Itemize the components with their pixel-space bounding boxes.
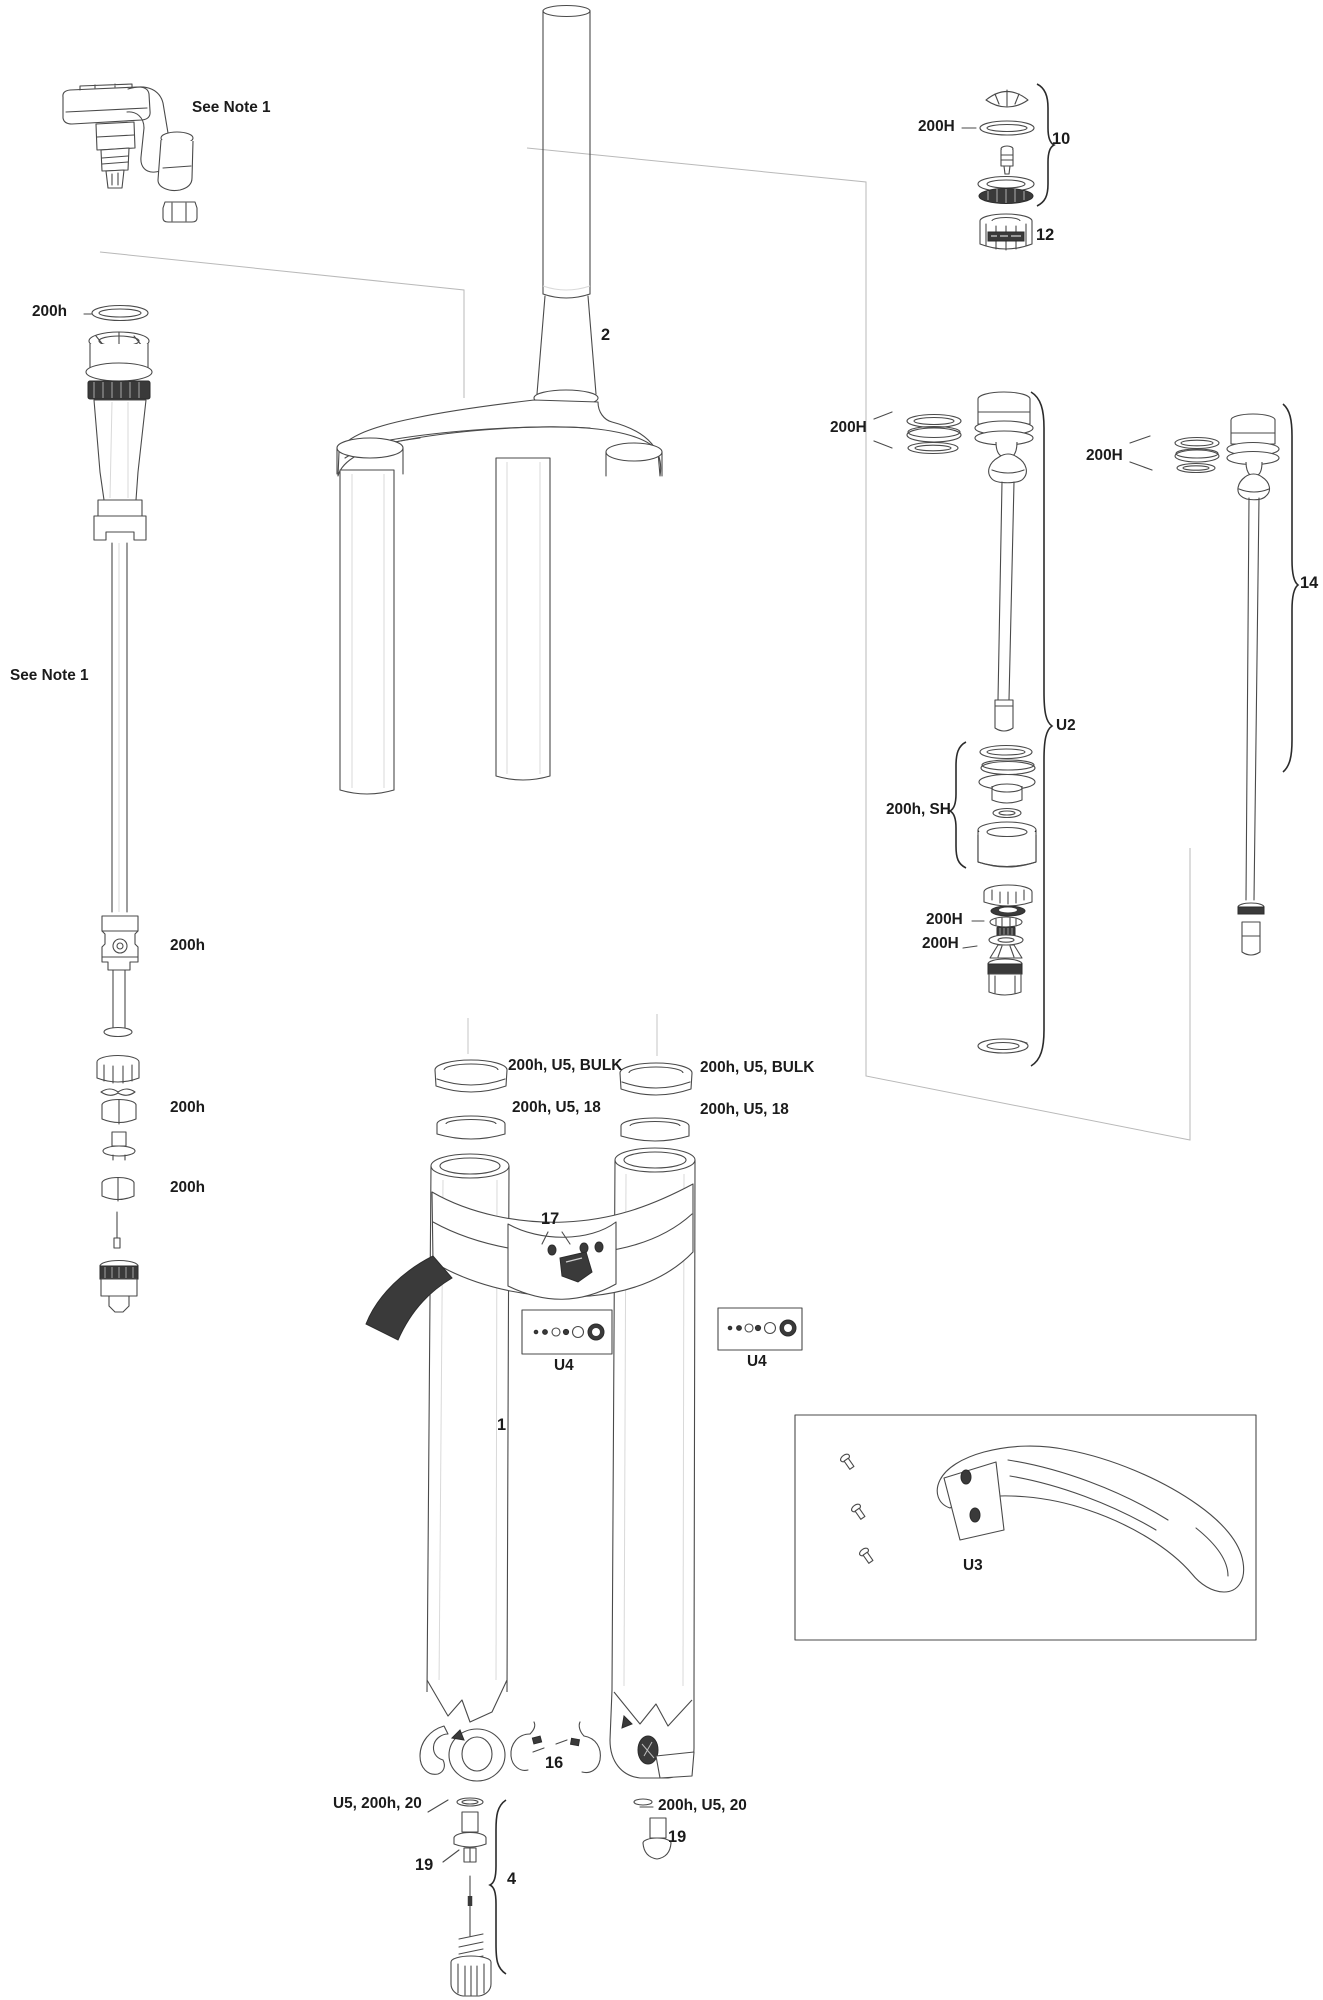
reference-box-air-spring	[100, 252, 464, 398]
crown-steerer-unit	[337, 6, 662, 795]
dropout-left	[420, 1680, 507, 1781]
label-group-4: 4	[507, 1870, 516, 1887]
crush-washer-right	[634, 1799, 652, 1805]
label-200H-topcap: 200H	[918, 119, 955, 135]
label-bolt-left: U5, 200h, 20	[333, 1796, 422, 1812]
dust-seal-left	[435, 1060, 507, 1092]
fender	[937, 1446, 1243, 1592]
leader-19-left	[443, 1850, 459, 1862]
rebound-base	[988, 959, 1022, 995]
foam-ring-left	[437, 1116, 505, 1139]
damper-shaft-group-14	[1130, 404, 1298, 955]
leader-bolt-left	[428, 1800, 448, 1812]
air-top-cap	[86, 332, 152, 399]
fender-screw	[839, 1453, 856, 1471]
dropout-right	[610, 1690, 694, 1778]
damper-lower-parts	[963, 885, 1032, 1053]
diagram-artwork	[0, 0, 1323, 2000]
label-200h-piston: 200h	[170, 938, 205, 954]
air-shaft-screw	[103, 1132, 135, 1160]
air-shaft-bolt-assembly	[100, 1261, 138, 1313]
air-seal-cup-2	[102, 1178, 134, 1202]
bottom-hardware	[428, 1798, 671, 1996]
shaft-lower-parts-right	[1238, 903, 1264, 955]
rebound-adjuster-rod	[451, 1876, 491, 1996]
foam-ring-right	[621, 1118, 689, 1141]
label-200H-lower-b: 200H	[922, 936, 959, 952]
bottom-washer	[978, 1039, 1028, 1053]
stanchion-right	[496, 458, 550, 780]
rebound-needle	[114, 1212, 120, 1248]
leader-200H-b	[963, 946, 977, 948]
adjuster-knob-12	[980, 214, 1032, 250]
label-see-note-1-top: See Note 1	[192, 100, 271, 116]
lowers-arch	[366, 1184, 693, 1340]
label-200H-right: 200H	[1086, 448, 1123, 464]
label-19-left: 19	[415, 1856, 433, 1873]
label-200h-cup1: 200h	[170, 1100, 205, 1116]
air-shaft	[94, 400, 146, 912]
air-piston	[102, 916, 138, 1035]
exploded-diagram-page: See Note 1 200h See Note 1 200h 200h 200…	[0, 0, 1323, 2000]
stanchion-left	[340, 470, 394, 794]
label-part-12: 12	[1036, 226, 1054, 243]
label-group-10: 10	[1052, 130, 1070, 147]
steerer-taper	[537, 296, 596, 394]
label-bolt-right: 200h, U5, 20	[658, 1798, 747, 1814]
reference-box-damper	[527, 148, 1190, 1140]
dust-seals-and-foam-rings	[435, 1014, 692, 1141]
arch-shadow	[366, 1256, 452, 1340]
damper-sealhead-rings	[907, 415, 961, 454]
bracket-4	[490, 1800, 506, 1974]
fender-kit-u3	[795, 1415, 1256, 1640]
leader-damper-200H	[874, 412, 892, 448]
shaft-top-cap-right	[1227, 414, 1279, 500]
label-bulk-right: 200h, U5, BULK	[700, 1060, 814, 1076]
leader-right-200H	[1130, 436, 1152, 470]
bushing-kit-u4-left	[522, 1310, 612, 1354]
air-top-oring	[92, 306, 148, 321]
air-seal-cup-1	[102, 1100, 136, 1125]
label-u3: U3	[963, 1558, 983, 1574]
sealhead-group-sh	[950, 742, 1036, 868]
bracket-sh	[950, 742, 966, 868]
label-part-16: 16	[545, 1754, 563, 1771]
label-200h-cup2: 200h	[170, 1180, 205, 1196]
label-18-left: 200h, U5, 18	[512, 1100, 601, 1116]
label-u4-right: U4	[747, 1354, 767, 1370]
fender-screw	[850, 1503, 867, 1521]
bracket-u2	[1031, 392, 1052, 1066]
air-spring-small-parts	[97, 1028, 139, 1313]
top-cap-group-10	[962, 84, 1054, 206]
damper-shaft	[995, 482, 1014, 731]
top-cap-oring	[980, 121, 1034, 135]
dust-seal-right	[620, 1063, 692, 1095]
label-steerer-2: 2	[601, 326, 610, 343]
label-19-right: 19	[668, 1828, 686, 1845]
label-part-17: 17	[541, 1210, 559, 1227]
label-lowers-1: 1	[497, 1416, 506, 1433]
label-see-note-1-left: See Note 1	[10, 668, 89, 684]
label-200H-lower-a: 200H	[926, 912, 963, 928]
shaft-bolt-left-19	[443, 1812, 486, 1862]
label-u4-left: U4	[554, 1358, 574, 1374]
lower-legs-assembly	[366, 1148, 695, 1781]
label-group-14: 14	[1300, 574, 1318, 591]
damper-top-cap	[975, 392, 1033, 483]
air-spring-assembly	[84, 306, 152, 1313]
sealhead-body	[978, 822, 1036, 867]
label-200h-air-top: 200h	[32, 304, 67, 320]
label-200H-damper: 200H	[830, 420, 867, 436]
damper-assembly-u2	[874, 392, 1052, 1066]
remote-clamp-nut	[163, 202, 197, 222]
label-group-u2: U2	[1056, 718, 1076, 734]
shaft-bolt-right-19	[643, 1818, 671, 1859]
bracket-14	[1283, 404, 1298, 772]
label-200h-sh: 200h, SH	[886, 802, 951, 818]
top-cap-knurled-ring	[979, 189, 1033, 204]
remote-lockout-assembly	[63, 84, 197, 222]
air-valve	[1001, 146, 1013, 174]
bushing-kit-u4-right	[718, 1308, 802, 1350]
fender-screw	[858, 1547, 875, 1565]
crush-washer-left	[457, 1798, 483, 1806]
label-bulk-left: 200h, U5, BULK	[508, 1058, 622, 1074]
label-18-right: 200h, U5, 18	[700, 1102, 789, 1118]
